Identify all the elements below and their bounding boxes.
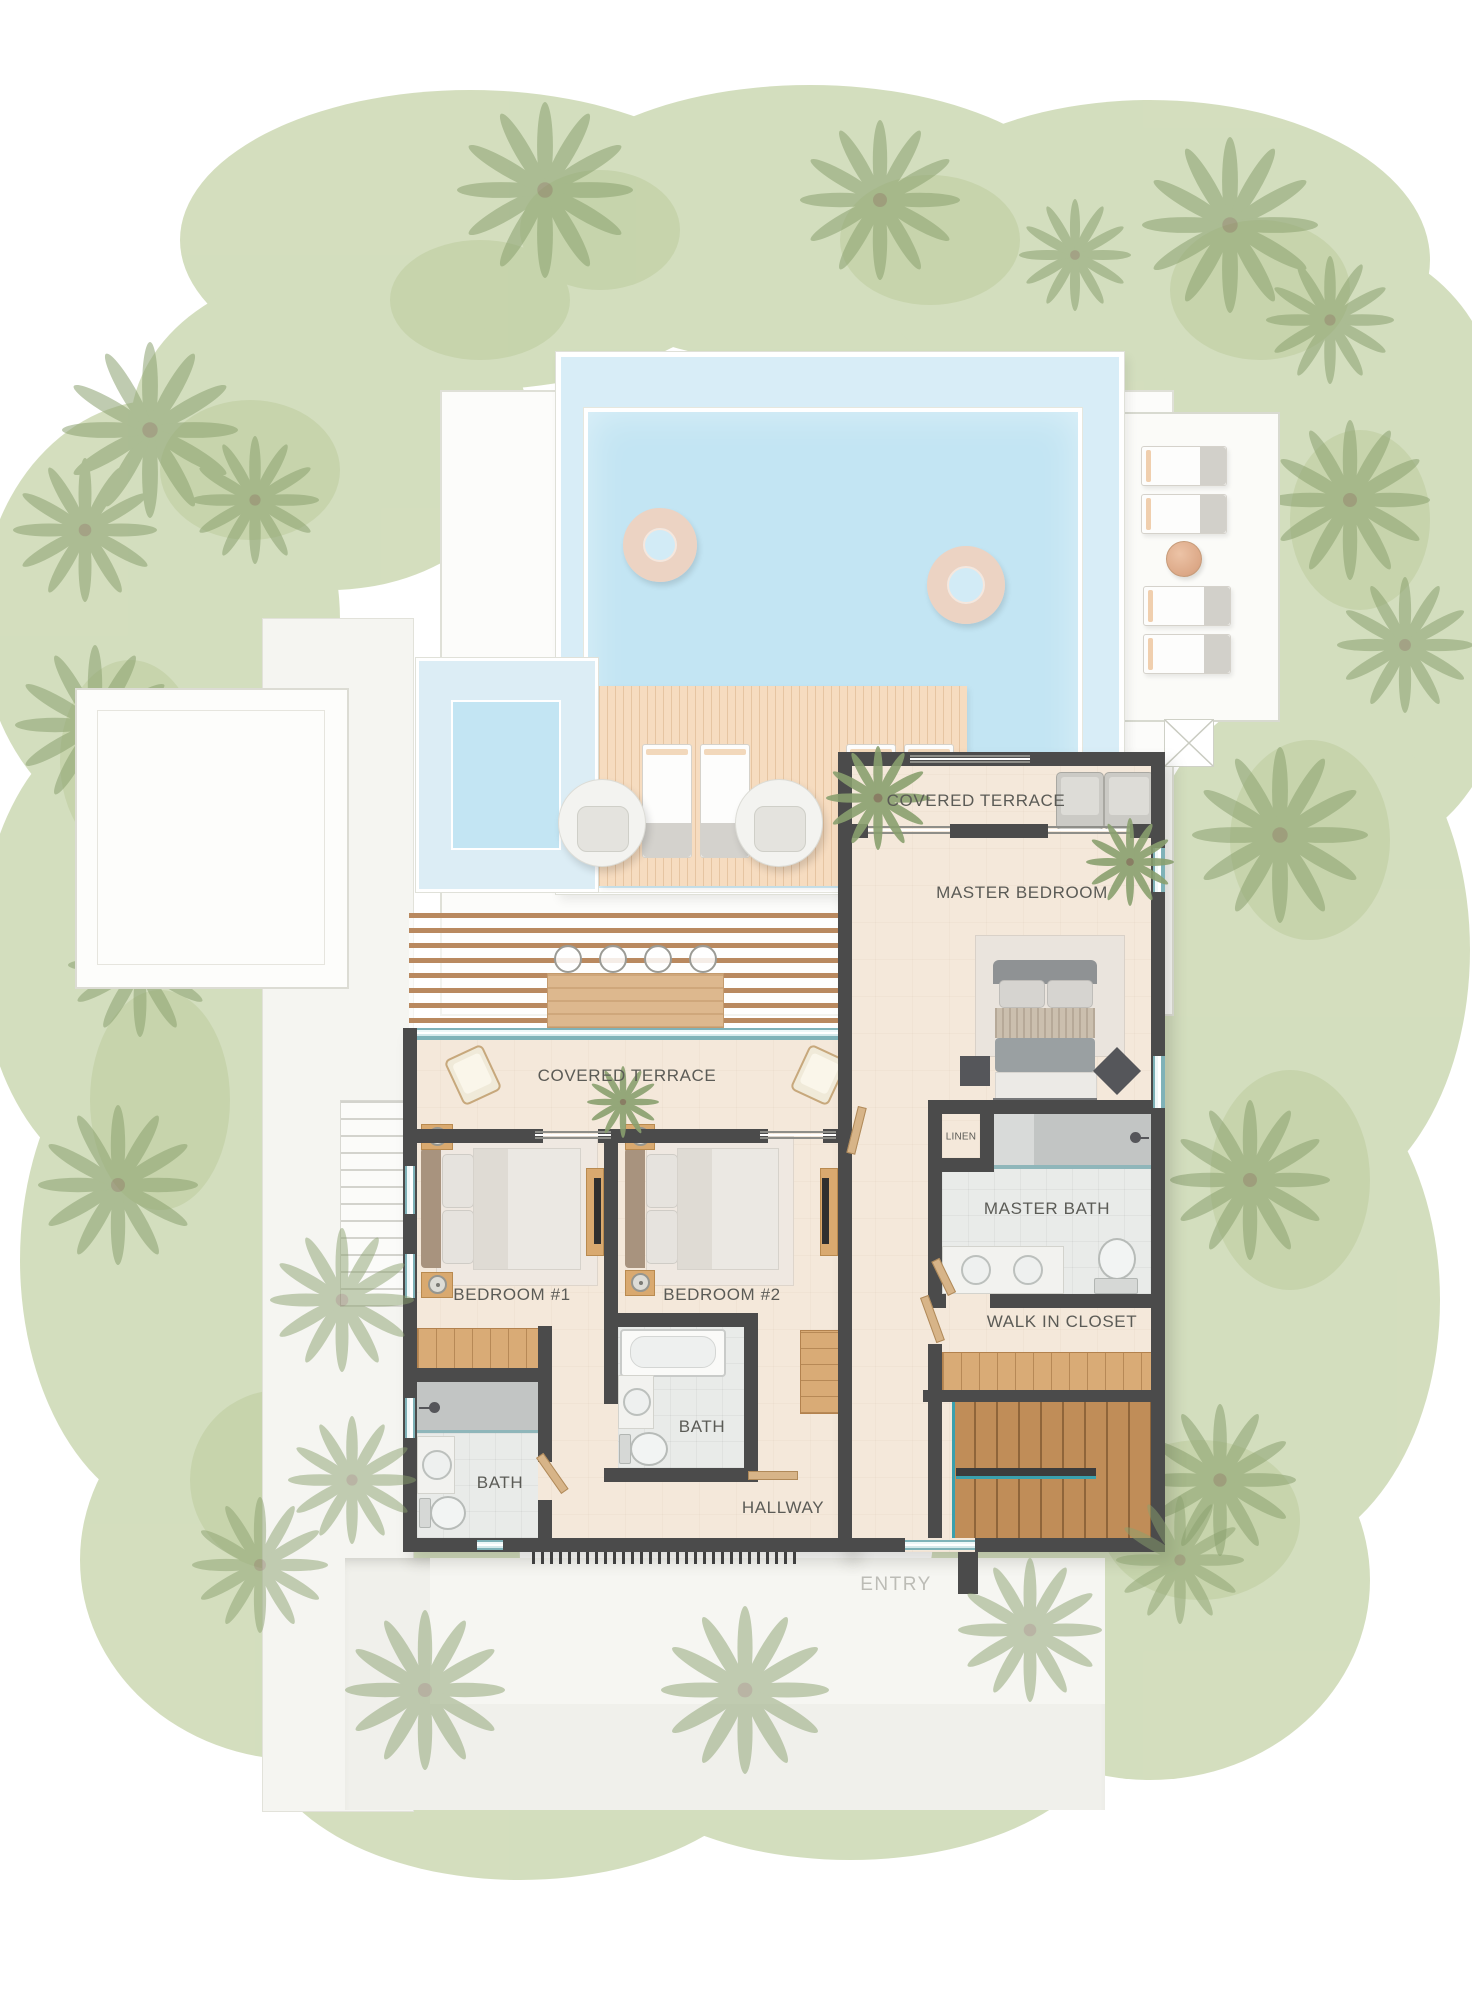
room-label-linen: LINEN [946,1132,976,1143]
room-label-bedroom1: BEDROOM #1 [453,1285,570,1305]
room-label-walk-in-closet: WALK IN CLOSET [987,1312,1137,1332]
room-label-bath1: BATH [477,1473,523,1493]
room-label-master-bedroom: MASTER BEDROOM [936,883,1108,903]
room-label-bedroom2: BEDROOM #2 [663,1285,780,1305]
room-label-bath2: BATH [679,1417,725,1437]
plants-layer [0,0,1472,2000]
room-label-master-terrace: COVERED TERRACE [887,791,1066,811]
floor-plan: COVERED TERRACE MASTER BEDROOM COVERED T… [0,0,1472,2000]
room-label-master-bath: MASTER BATH [984,1199,1110,1219]
room-label-hallway: HALLWAY [742,1498,824,1518]
area-label-entry: ENTRY [860,1574,932,1596]
room-label-terrace: COVERED TERRACE [538,1066,717,1086]
